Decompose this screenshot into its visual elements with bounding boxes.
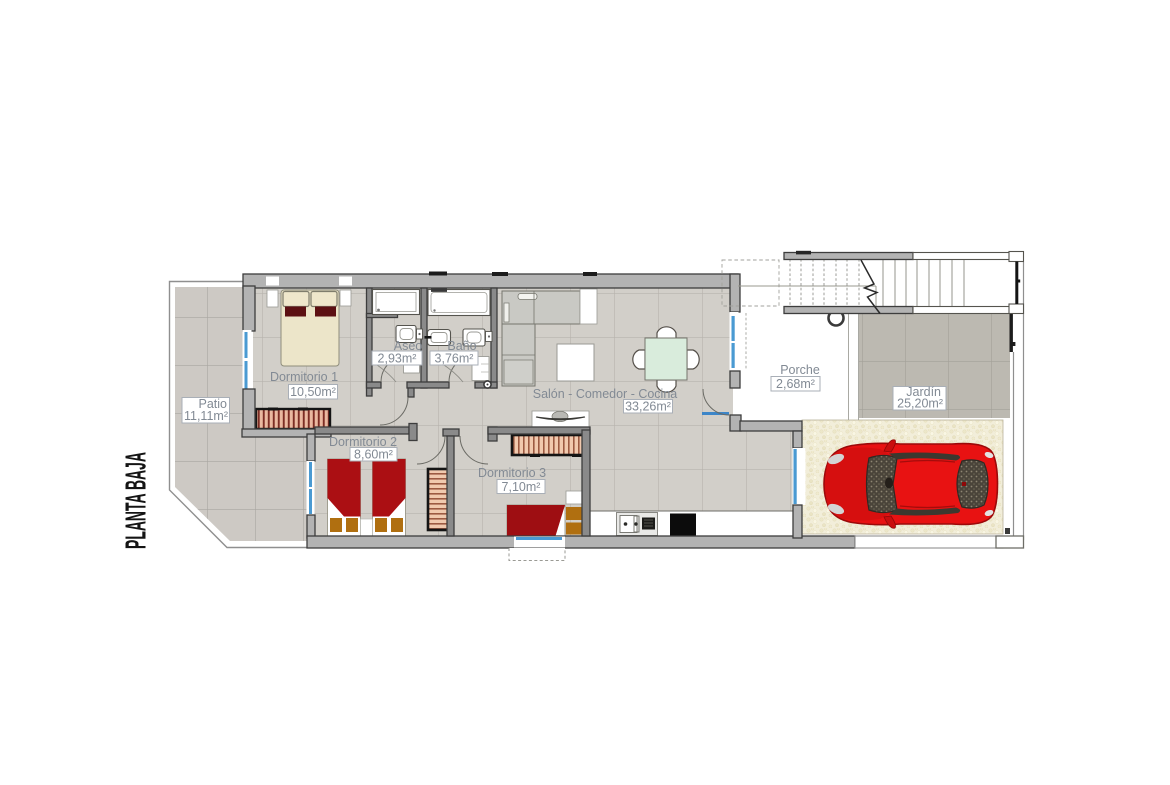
svg-text:3,76m²: 3,76m²: [435, 352, 474, 366]
svg-text:10,50m²: 10,50m²: [290, 385, 336, 399]
svg-text:33,26m²: 33,26m²: [625, 400, 671, 414]
svg-text:Dormitorio 3: Dormitorio 3: [478, 466, 546, 480]
svg-text:PLANTA BAJA: PLANTA BAJA: [121, 452, 153, 549]
svg-text:Dormitorio 1: Dormitorio 1: [270, 370, 338, 384]
svg-text:8,60m²: 8,60m²: [354, 448, 393, 462]
svg-text:2,93m²: 2,93m²: [378, 352, 417, 366]
svg-text:Porche: Porche: [780, 363, 820, 377]
svg-text:2,68m²: 2,68m²: [776, 377, 815, 391]
svg-text:25,20m²: 25,20m²: [897, 397, 943, 411]
svg-text:11,11m²: 11,11m²: [184, 409, 228, 423]
svg-text:7,10m²: 7,10m²: [502, 480, 541, 494]
